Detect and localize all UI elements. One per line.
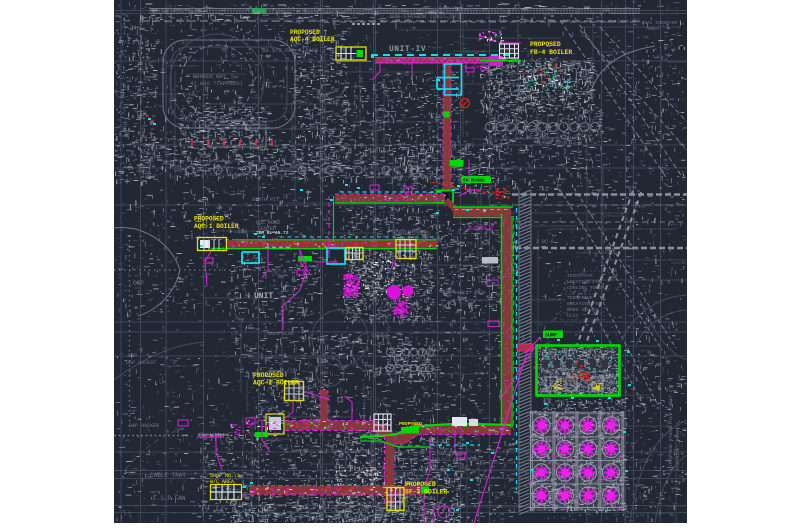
svg-text:AREA: AREA xyxy=(648,26,659,32)
svg-text:CABLE TRAY: CABLE TRAY xyxy=(150,472,186,479)
svg-text:5 BC-4: 5 BC-4 xyxy=(621,246,639,252)
svg-text:SF-3 BOILER: SF-3 BOILER xyxy=(405,489,447,496)
svg-text:DAP HACKGT: DAP HACKGT xyxy=(126,360,156,366)
svg-text:SUB-STATION (UNIT-IV): SUB-STATION (UNIT-IV) xyxy=(390,13,459,20)
svg-text:PROPOSED: PROPOSED xyxy=(405,481,436,488)
svg-text:AQC-1 BOILER: AQC-1 BOILER xyxy=(194,223,239,230)
svg-text:AQC-4 BOILER: AQC-4 BOILER xyxy=(290,36,335,43)
svg-text:LOCATION FOR: LOCATION FOR xyxy=(567,279,602,285)
svg-text:PROPOSED: PROPOSED xyxy=(530,41,561,48)
svg-text:45,005 10.8 12.0: 45,005 10.8 12.0 xyxy=(534,140,582,146)
svg-text:PROPOSED: PROPOSED xyxy=(399,421,422,427)
svg-text:TENTATIVE: TENTATIVE xyxy=(567,273,593,279)
svg-text:DAP HACKER: DAP HACKER xyxy=(129,423,159,429)
svg-text:AQC-2 BOILER: AQC-2 BOILER xyxy=(253,380,299,387)
svg-text:CAPACITY: 2000T: CAPACITY: 2000T xyxy=(675,427,681,470)
svg-text:CLAY: CLAY xyxy=(567,313,579,319)
svg-text:47,000 T(APPROX): 47,000 T(APPROX) xyxy=(190,80,243,87)
svg-text:LOCATION FOR: LOCATION FOR xyxy=(567,301,602,307)
svg-text:TENTATIVE: TENTATIVE xyxy=(567,295,593,301)
svg-text:CSP: CSP xyxy=(133,280,144,287)
svg-text:CSP: CSP xyxy=(128,353,137,359)
svg-text:EARTH PIT: EARTH PIT xyxy=(252,197,279,203)
svg-text:TBM RL=45.72: TBM RL=45.72 xyxy=(256,230,289,236)
svg-text:COOLING TOWER: COOLING TOWER xyxy=(567,285,605,291)
svg-text:ROAD WIDENING: ROAD WIDENING xyxy=(198,434,230,438)
svg-text:PROPOSED: PROPOSED xyxy=(290,29,320,36)
svg-text:BG ROUND: BG ROUND xyxy=(463,178,485,184)
svg-text:BCC ROOM: BCC ROOM xyxy=(443,290,465,296)
svg-text:UNIT: UNIT xyxy=(254,292,273,301)
svg-text:WHRS XTG-GW: WHRS XTG-GW xyxy=(567,307,599,313)
svg-text:BUNKER BAY: BUNKER BAY xyxy=(193,73,227,80)
svg-text:UNIT-IV: UNIT-IV xyxy=(389,45,426,54)
svg-text:PROPOSED: PROPOSED xyxy=(253,372,284,379)
svg-text:PROPOSED: PROPOSED xyxy=(194,216,224,223)
svg-text:FB-4 BOILER: FB-4 BOILER xyxy=(530,49,572,56)
svg-text:2 BC-8: 2 BC-8 xyxy=(536,239,554,245)
svg-text:SUMP: SUMP xyxy=(545,333,557,339)
svg-text:E.S.P FAN: E.S.P FAN xyxy=(153,495,186,502)
svg-text:DN95 BLDG: DN95 BLDG xyxy=(268,331,294,337)
